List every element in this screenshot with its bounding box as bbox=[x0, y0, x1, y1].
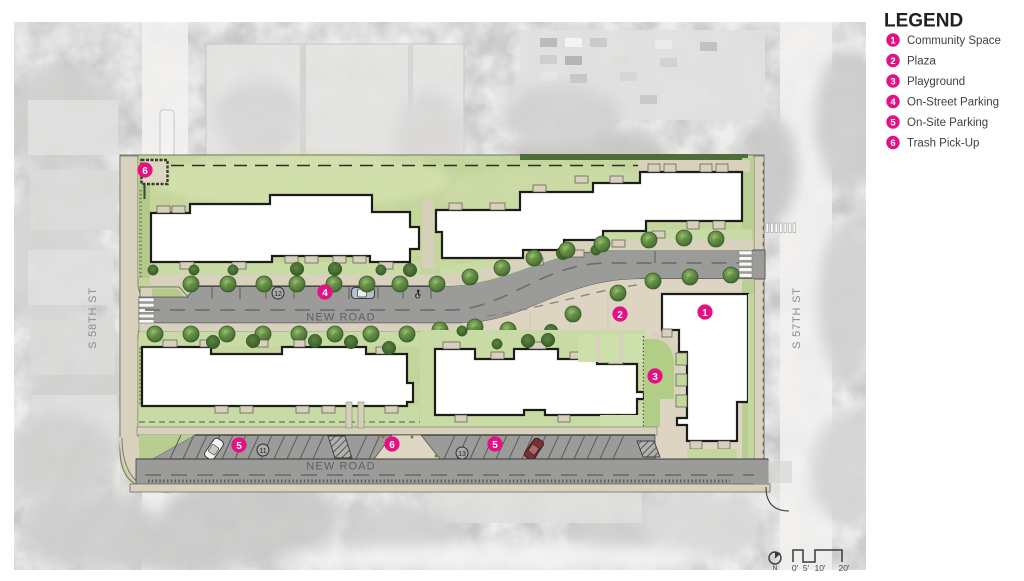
svg-text:Community Space: Community Space bbox=[907, 35, 1001, 47]
svg-text:6: 6 bbox=[142, 166, 148, 177]
svg-text:2: 2 bbox=[617, 310, 623, 321]
svg-text:12: 12 bbox=[274, 291, 282, 298]
svg-text:3: 3 bbox=[890, 77, 895, 88]
svg-text:1: 1 bbox=[702, 308, 708, 319]
svg-text:Plaza: Plaza bbox=[907, 56, 936, 68]
svg-text:6: 6 bbox=[890, 138, 895, 149]
svg-text:On-Site Parking: On-Site Parking bbox=[907, 117, 988, 129]
svg-text:4: 4 bbox=[890, 97, 896, 108]
svg-text:5′: 5′ bbox=[803, 563, 810, 573]
svg-text:S 58TH ST: S 58TH ST bbox=[87, 287, 99, 349]
svg-text:5: 5 bbox=[890, 118, 896, 129]
svg-text:1: 1 bbox=[890, 36, 896, 47]
svg-text:NEW ROAD: NEW ROAD bbox=[306, 461, 375, 473]
svg-text:S 57TH ST: S 57TH ST bbox=[791, 287, 803, 349]
svg-text:20′: 20′ bbox=[838, 563, 849, 573]
svg-text:On-Street Parking: On-Street Parking bbox=[907, 97, 999, 109]
svg-text:5: 5 bbox=[492, 440, 498, 451]
svg-text:4: 4 bbox=[322, 288, 328, 299]
svg-text:Trash Pick-Up: Trash Pick-Up bbox=[907, 138, 979, 150]
svg-text:11: 11 bbox=[259, 448, 266, 455]
svg-text:N: N bbox=[773, 565, 778, 572]
svg-text:NEW ROAD: NEW ROAD bbox=[306, 312, 375, 324]
svg-text:6: 6 bbox=[389, 440, 395, 451]
svg-text:0′: 0′ bbox=[792, 563, 799, 573]
svg-text:LEGEND: LEGEND bbox=[884, 11, 963, 32]
svg-text:3: 3 bbox=[652, 372, 658, 383]
svg-text:Playground: Playground bbox=[907, 76, 965, 88]
svg-text:5: 5 bbox=[236, 441, 242, 452]
svg-text:2: 2 bbox=[890, 56, 895, 67]
svg-text:13: 13 bbox=[458, 451, 466, 458]
svg-text:10′: 10′ bbox=[814, 563, 825, 573]
